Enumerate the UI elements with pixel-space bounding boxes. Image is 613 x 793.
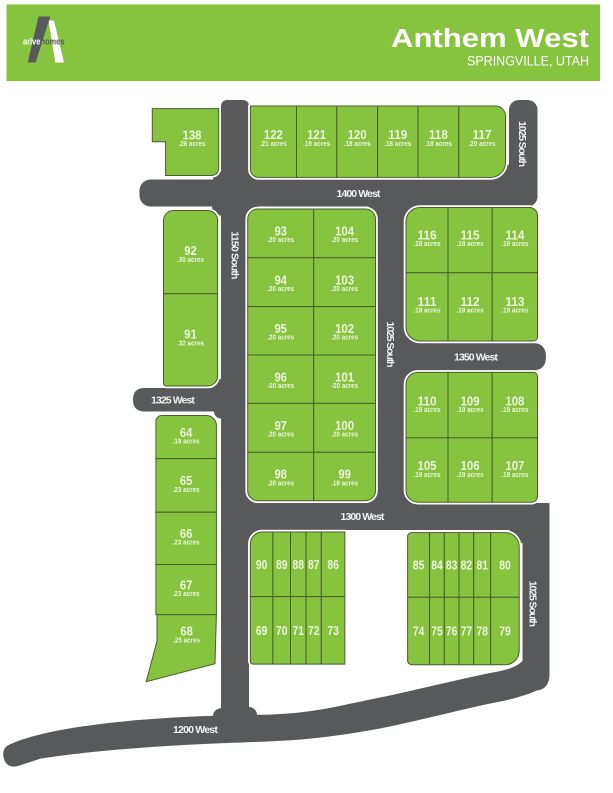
svg-text:.20 acres: .20 acres bbox=[331, 432, 358, 439]
svg-text:.19 acres: .19 acres bbox=[501, 241, 528, 248]
svg-text:81: 81 bbox=[476, 559, 488, 573]
svg-text:88: 88 bbox=[293, 558, 305, 572]
svg-text:.20 acres: .20 acres bbox=[267, 480, 294, 487]
svg-text:83: 83 bbox=[446, 559, 458, 573]
svg-text:.21 acres: .21 acres bbox=[260, 141, 287, 148]
svg-text:.23 acres: .23 acres bbox=[173, 487, 200, 494]
svg-text:.20 acres: .20 acres bbox=[267, 335, 294, 342]
svg-text:1325 West: 1325 West bbox=[151, 395, 195, 407]
svg-text:85: 85 bbox=[413, 559, 425, 573]
svg-text:.20 acres: .20 acres bbox=[267, 432, 294, 439]
svg-text:75: 75 bbox=[431, 625, 443, 639]
svg-text:.25 acres: .25 acres bbox=[173, 637, 200, 644]
svg-text:90: 90 bbox=[256, 558, 268, 572]
svg-text:78: 78 bbox=[476, 625, 488, 639]
svg-text:.19 acres: .19 acres bbox=[457, 308, 484, 315]
svg-text:.18 acres: .18 acres bbox=[457, 241, 484, 248]
svg-text:.18 acres: .18 acres bbox=[414, 308, 441, 315]
svg-text:1025 South: 1025 South bbox=[526, 581, 538, 627]
svg-text:77: 77 bbox=[461, 625, 473, 639]
svg-text:1350 West: 1350 West bbox=[454, 352, 498, 364]
svg-text:1300 West: 1300 West bbox=[341, 511, 385, 523]
svg-text:.20 acres: .20 acres bbox=[469, 141, 496, 148]
svg-text:79: 79 bbox=[499, 625, 511, 639]
svg-text:1025 South: 1025 South bbox=[384, 321, 396, 367]
svg-text:.18 acres: .18 acres bbox=[425, 141, 452, 148]
svg-text:.26 acres: .26 acres bbox=[179, 141, 206, 148]
svg-text:.20 acres: .20 acres bbox=[267, 286, 294, 293]
svg-text:.20 acres: .20 acres bbox=[331, 237, 358, 244]
svg-text:71: 71 bbox=[293, 624, 305, 638]
svg-text:80: 80 bbox=[499, 559, 511, 573]
svg-text:1025 South: 1025 South bbox=[516, 121, 528, 167]
svg-text:.18 acres: .18 acres bbox=[414, 241, 441, 248]
svg-text:.19 acres: .19 acres bbox=[303, 141, 330, 148]
svg-text:89: 89 bbox=[276, 558, 288, 572]
svg-text:-20 acres: -20 acres bbox=[331, 383, 358, 390]
svg-text:84: 84 bbox=[431, 559, 443, 573]
svg-text:1200 West: 1200 West bbox=[173, 724, 218, 736]
svg-text:SPRINGVILLE, UTAH: SPRINGVILLE, UTAH bbox=[467, 54, 589, 70]
svg-text:.23 acres: .23 acres bbox=[173, 540, 200, 547]
svg-text:.19 acres: .19 acres bbox=[501, 472, 528, 479]
svg-text:.18 acres: .18 acres bbox=[344, 141, 371, 148]
svg-text:.20 acres: .20 acres bbox=[267, 237, 294, 244]
svg-text:.19 acres: .19 acres bbox=[414, 472, 441, 479]
svg-text:.19 acres: .19 acres bbox=[414, 407, 441, 414]
svg-text:1150 South: 1150 South bbox=[229, 231, 241, 279]
svg-text:74: 74 bbox=[413, 625, 425, 639]
svg-text:.19 acres: .19 acres bbox=[331, 480, 358, 487]
svg-text:72: 72 bbox=[308, 624, 320, 638]
svg-text:.19 acres: .19 acres bbox=[501, 407, 528, 414]
svg-text:.20 acres: .20 acres bbox=[331, 286, 358, 293]
svg-text:.19 acres: .19 acres bbox=[173, 438, 200, 445]
svg-text:arivehomes: arivehomes bbox=[23, 37, 65, 48]
svg-text:-20 acres: -20 acres bbox=[267, 383, 294, 390]
svg-text:69: 69 bbox=[256, 624, 268, 638]
svg-text:.30 acres: .30 acres bbox=[177, 257, 204, 264]
svg-text:Anthem West: Anthem West bbox=[391, 25, 590, 53]
svg-text:.20 acres: .20 acres bbox=[331, 335, 358, 342]
svg-text:82: 82 bbox=[461, 559, 473, 573]
svg-text:86: 86 bbox=[327, 558, 339, 572]
svg-text:.19 acres: .19 acres bbox=[457, 407, 484, 414]
svg-text:.19 acres: .19 acres bbox=[501, 308, 528, 315]
svg-text:.23 acres: .23 acres bbox=[173, 591, 200, 598]
svg-text:87: 87 bbox=[308, 558, 320, 572]
svg-text:76: 76 bbox=[446, 625, 458, 639]
svg-text:1400 West: 1400 West bbox=[337, 188, 381, 200]
svg-text:.32 acres: .32 acres bbox=[177, 340, 204, 347]
svg-text:.19 acres: .19 acres bbox=[457, 472, 484, 479]
svg-text:73: 73 bbox=[327, 624, 339, 638]
svg-text:70: 70 bbox=[276, 624, 288, 638]
svg-text:.18 acres: .18 acres bbox=[384, 141, 411, 148]
